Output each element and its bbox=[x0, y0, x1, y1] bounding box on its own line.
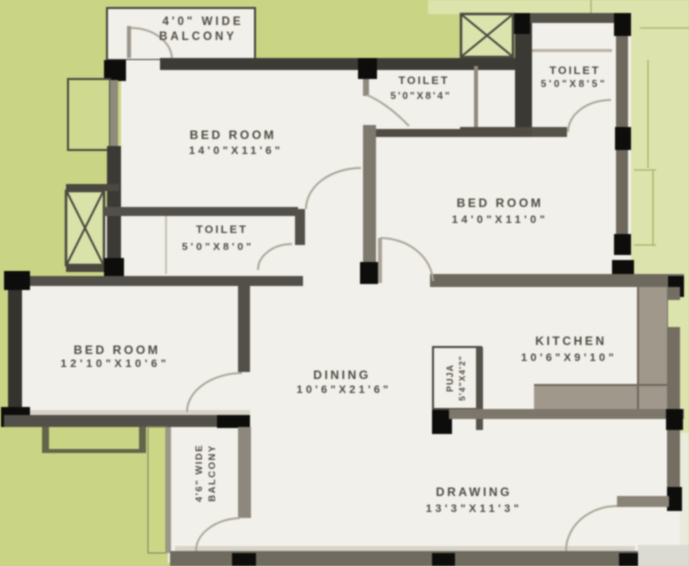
svg-text:14'0"X11'0": 14'0"X11'0" bbox=[452, 214, 549, 226]
svg-text:5'0"X8'5": 5'0"X8'5" bbox=[541, 79, 608, 90]
svg-text:12'10"X10'6": 12'10"X10'6" bbox=[60, 358, 169, 370]
svg-text:BALCONY: BALCONY bbox=[159, 31, 237, 43]
svg-text:5'0"X8'0": 5'0"X8'0" bbox=[182, 241, 254, 253]
svg-text:BALCONY: BALCONY bbox=[207, 444, 218, 501]
svg-text:4'6" WIDE: 4'6" WIDE bbox=[194, 444, 205, 502]
svg-text:TOILET: TOILET bbox=[550, 65, 601, 77]
svg-text:10'6"X9'10": 10'6"X9'10" bbox=[521, 352, 617, 364]
svg-text:DINING: DINING bbox=[313, 368, 371, 382]
svg-text:13'3"X11'3": 13'3"X11'3" bbox=[426, 503, 523, 515]
svg-text:4'0" WIDE: 4'0" WIDE bbox=[162, 16, 243, 28]
svg-text:10'6"X21'6": 10'6"X21'6" bbox=[297, 384, 392, 396]
svg-text:BED ROOM: BED ROOM bbox=[190, 128, 277, 142]
svg-text:5'4"X4'2": 5'4"X4'2" bbox=[457, 355, 467, 401]
svg-text:KITCHEN: KITCHEN bbox=[535, 334, 607, 348]
svg-text:5'0"X8'4": 5'0"X8'4" bbox=[390, 91, 451, 102]
svg-text:TOILET: TOILET bbox=[399, 75, 450, 87]
svg-text:BED ROOM: BED ROOM bbox=[74, 343, 161, 357]
svg-text:BED ROOM: BED ROOM bbox=[457, 196, 544, 210]
svg-text:PUJA: PUJA bbox=[445, 364, 455, 392]
svg-text:TOILET: TOILET bbox=[196, 224, 248, 236]
svg-text:DRAWING: DRAWING bbox=[436, 485, 512, 499]
svg-text:14'0"X11'6": 14'0"X11'6" bbox=[189, 145, 283, 157]
